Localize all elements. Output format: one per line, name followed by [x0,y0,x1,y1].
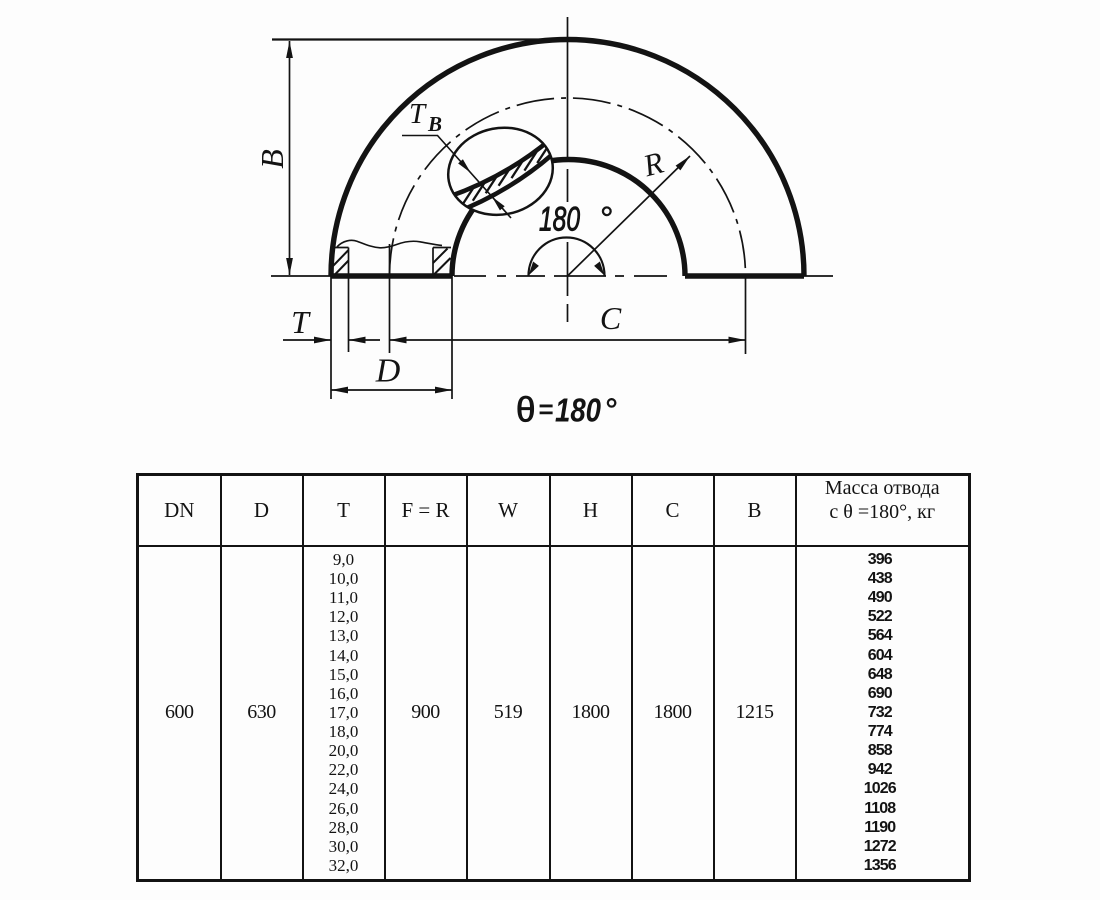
svg-text:R: R [639,144,667,183]
svg-text:D: D [375,353,401,390]
svg-text:=: = [539,394,554,424]
svg-text:180: 180 [555,392,602,429]
svg-text:T: T [291,304,311,340]
svg-text:B: B [427,112,442,136]
svg-text:C: C [600,300,622,336]
svg-text:B: B [254,149,290,169]
svg-text:180: 180 [539,201,580,239]
svg-text:T: T [409,98,427,130]
svg-text:°: ° [605,392,618,429]
svg-text:°: ° [600,201,614,239]
svg-text:θ: θ [516,391,535,430]
